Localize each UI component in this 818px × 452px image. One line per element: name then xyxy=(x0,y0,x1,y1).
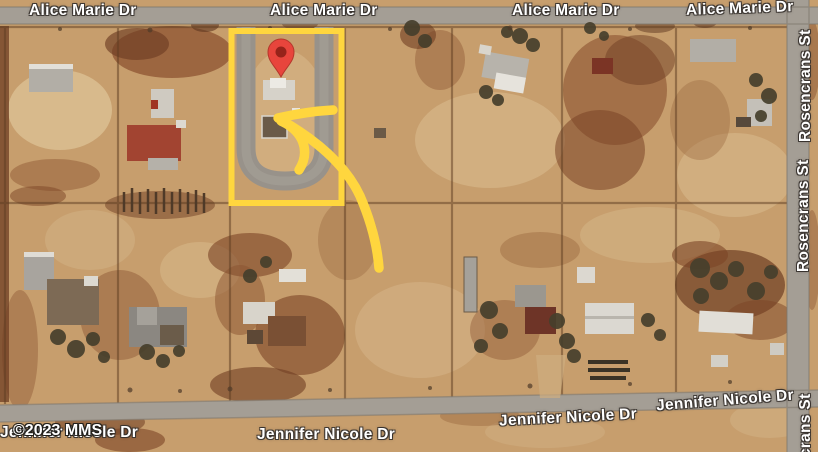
satellite-map-image: Alice Marie Dr Alice Marie Dr Alice Mari… xyxy=(0,0,818,452)
satellite-terrain xyxy=(0,0,818,452)
road-rosencrans-st xyxy=(787,0,809,452)
copyright-watermark: ©2023 MMS xyxy=(13,422,102,440)
